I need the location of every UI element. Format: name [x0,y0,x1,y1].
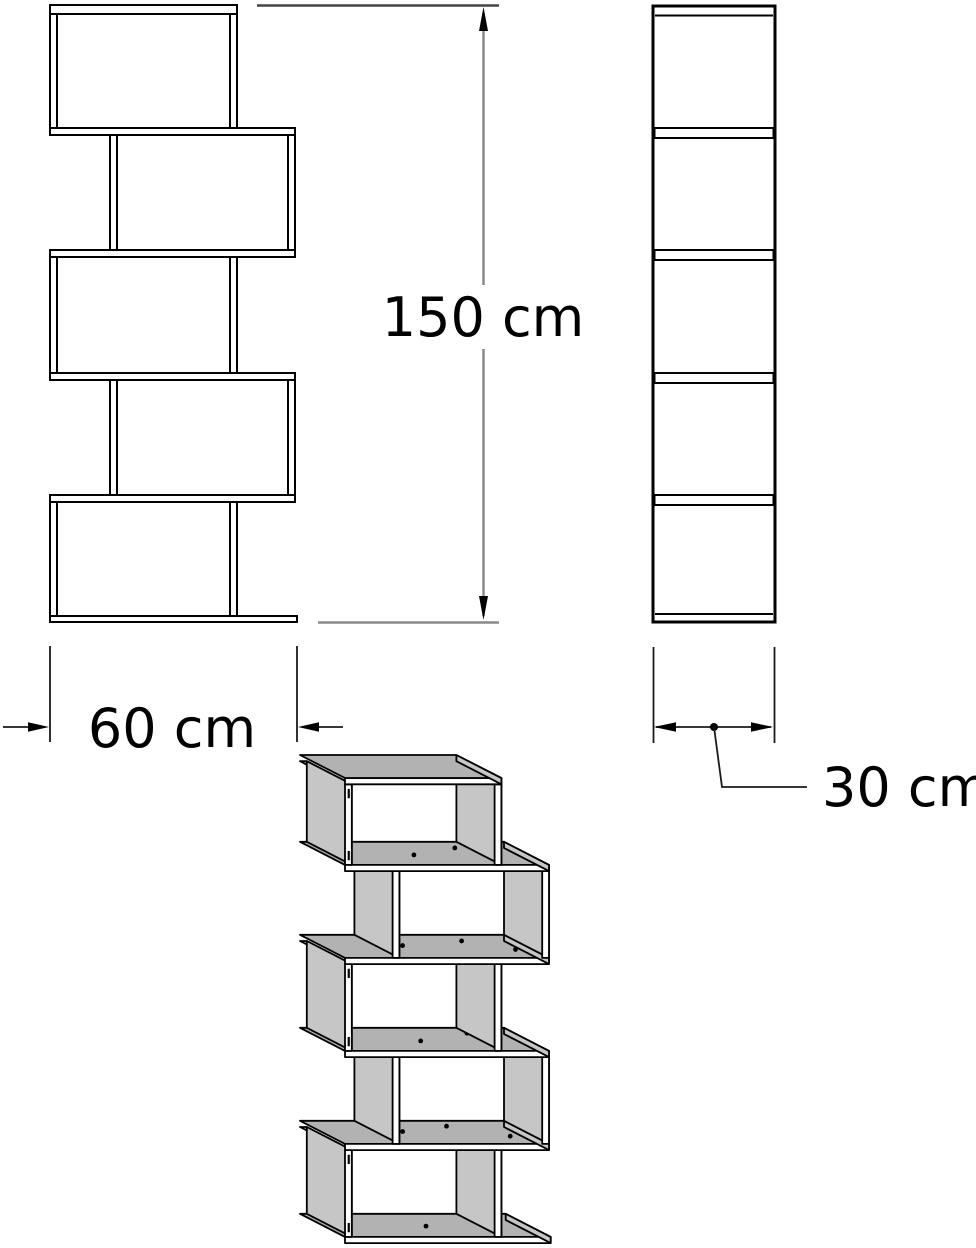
front-shelf-4 [50,495,295,502]
height-arrow-up [479,7,488,31]
persp-shelf-4-front-edge [345,865,549,871]
depth-leader-line [714,727,807,787]
front-box1-left-wall [50,7,57,131]
persp-shelf-3-front-edge [345,958,549,964]
width-arrow-right [298,722,319,732]
screw-mark [418,1038,423,1043]
width-label: 60 cm [88,697,256,760]
persp-box5-right-wall-front-edge [495,1150,502,1237]
front-view [50,5,297,622]
side-shelf-4 [655,495,774,505]
front-box5-right-wall [230,500,237,619]
width-arrow-left [28,722,49,732]
side-shelf-3 [655,373,774,383]
persp-box2-right-wall-front-edge [542,871,549,958]
screw-mark [400,943,405,948]
height-arrow-down [479,596,488,620]
persp-box2-left-wall-front-edge [393,871,400,958]
persp-box1-right-wall-front-edge [495,784,502,865]
screw-mark [424,1224,429,1229]
persp-box4-left-wall-front-edge [393,1057,400,1144]
depth-arrow-right [751,722,773,732]
front-box2-right-wall [288,133,295,253]
front-box4-right-wall [288,378,295,498]
persp-shelf-2-front-edge [345,1051,549,1057]
screw-mark [508,1134,513,1139]
screw-mark [444,1124,449,1129]
persp-box3-right-wall-front-edge [495,964,502,1051]
side-shelf-2 [655,250,774,260]
depth-label: 30 cm [822,756,976,819]
side-shelf-1 [655,128,774,138]
side-outline [653,6,775,622]
screw-mark [400,1129,405,1134]
front-box4-left-wall [110,378,117,498]
technical-drawing: 150 cm 60 cm 30 cm [0,0,976,1248]
persp-box4-right-wall-front-edge [542,1057,549,1144]
perspective-view [300,755,551,1243]
width-dimension: 60 cm [3,646,343,760]
front-bottom-panel [50,616,297,622]
front-top-panel [50,5,237,14]
screw-mark [412,852,417,857]
screw-mark [452,846,457,851]
height-dimension: 150 cm [257,6,584,623]
persp-top-panel-front-edge [345,778,501,784]
front-box3-right-wall [230,255,237,376]
front-shelf-1 [50,128,295,135]
front-box3-left-wall [50,255,57,376]
persp-shelf-1-front-edge [345,1144,549,1150]
drawing-canvas: 150 cm 60 cm 30 cm [0,0,976,1248]
screw-mark [513,947,518,952]
front-box2-left-wall [110,133,117,253]
screw-mark [459,939,464,944]
front-shelf-2 [50,250,295,257]
persp-bottom-panel-front-edge [345,1237,551,1243]
depth-arrow-left [654,722,676,732]
depth-dimension: 30 cm [654,647,976,819]
front-box5-left-wall [50,500,57,619]
front-box1-right-wall [230,7,237,131]
height-label: 150 cm [382,286,585,349]
front-shelf-3 [50,373,295,380]
side-view [653,6,775,622]
